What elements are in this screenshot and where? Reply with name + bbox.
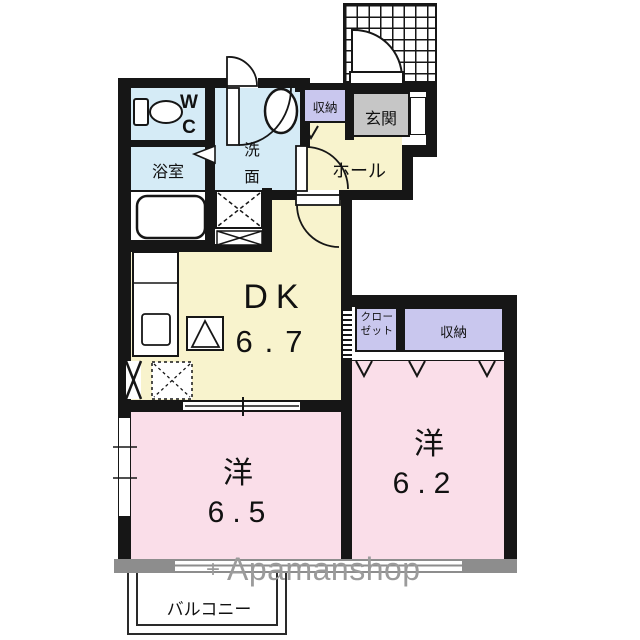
refrigerator-space-icon (152, 362, 192, 399)
kitchen-counter-icon (133, 252, 178, 356)
washbasin-icon (265, 89, 297, 133)
bedroom-east-label: 洋 (394, 419, 464, 463)
floorplan: WC 浴室 洗面 ホール 玄関 収納 DK 6.7 クローゼット 収納 洋 6.… (0, 0, 640, 640)
bathtub-icon (137, 196, 205, 238)
balcony-label: バルコニー (149, 595, 269, 620)
sliding-opening-marks (185, 397, 299, 416)
dk-door-swing (296, 195, 340, 247)
hall-label: ホール (314, 157, 404, 183)
washing-machine-icon (216, 191, 262, 228)
bedroom-west-size: 6.5 (178, 496, 303, 530)
pipe-shaft-icon (126, 361, 141, 399)
entrance-storage-label: 収納 (303, 97, 347, 116)
watermark-text: Apamanshop (227, 551, 421, 588)
window-west-ticks (113, 447, 137, 478)
duct-icon (217, 231, 262, 245)
entrance-door-swing (350, 30, 403, 84)
bedroom-storage-label: 収納 (403, 321, 504, 341)
entrance-label: 玄関 (352, 105, 410, 129)
closet-label: クローゼット (357, 311, 397, 338)
dk-size: 6.7 (210, 324, 340, 360)
bathroom-label: 浴室 (131, 158, 205, 182)
watermark: + Apamanshop (206, 551, 421, 588)
washroom-label: 洗面 (243, 137, 261, 191)
fixtures-overlay (0, 0, 640, 640)
watermark-plus-icon: + (206, 556, 220, 584)
bedroom-west-label: 洋 (203, 448, 273, 492)
wc-label: WC (179, 90, 199, 140)
dk-label: DK (215, 278, 335, 317)
bedroom-east-size: 6.2 (363, 467, 488, 501)
toilet-icon (134, 99, 182, 125)
